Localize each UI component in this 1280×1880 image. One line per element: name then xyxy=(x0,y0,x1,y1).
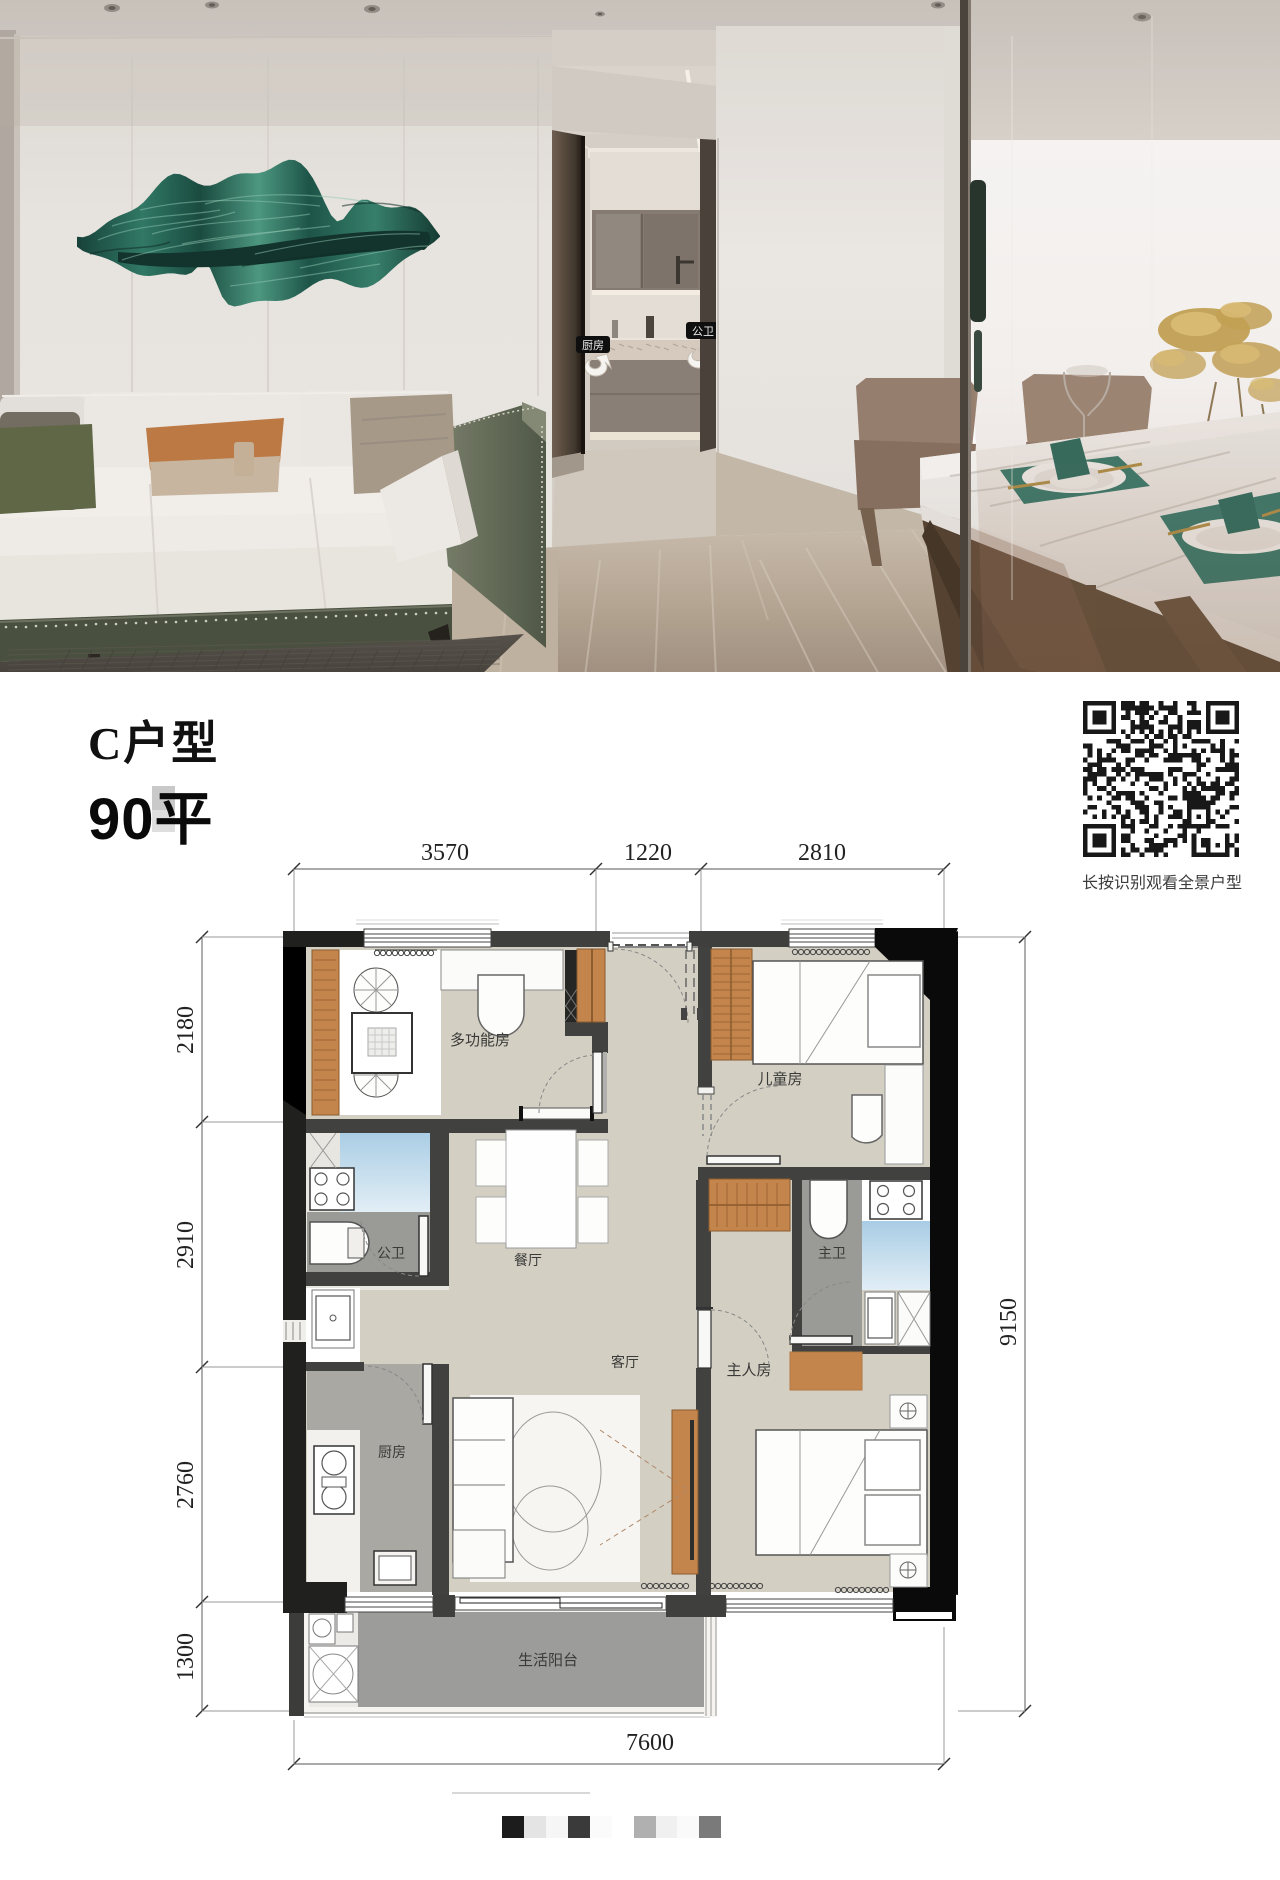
svg-text:公卫: 公卫 xyxy=(377,1245,405,1261)
svg-text:主人房: 主人房 xyxy=(726,1362,771,1379)
svg-text:生活阳台: 生活阳台 xyxy=(518,1652,578,1669)
svg-text:2910: 2910 xyxy=(173,1221,199,1269)
svg-text:2760: 2760 xyxy=(173,1461,199,1509)
svg-text:儿童房: 儿童房 xyxy=(757,1070,802,1088)
svg-text:9150: 9150 xyxy=(996,1298,1022,1346)
svg-text:1300: 1300 xyxy=(173,1633,199,1681)
svg-text:1220: 1220 xyxy=(624,840,672,866)
svg-text:主卫: 主卫 xyxy=(818,1245,846,1261)
svg-text:厨房: 厨房 xyxy=(378,1444,406,1460)
svg-text:3570: 3570 xyxy=(421,840,469,866)
svg-text:多功能房: 多功能房 xyxy=(450,1032,510,1049)
svg-text:餐厅: 餐厅 xyxy=(514,1252,542,1268)
svg-text:客厅: 客厅 xyxy=(611,1354,639,1370)
svg-text:2180: 2180 xyxy=(173,1006,199,1054)
svg-text:2810: 2810 xyxy=(798,840,846,866)
svg-text:7600: 7600 xyxy=(626,1730,674,1756)
